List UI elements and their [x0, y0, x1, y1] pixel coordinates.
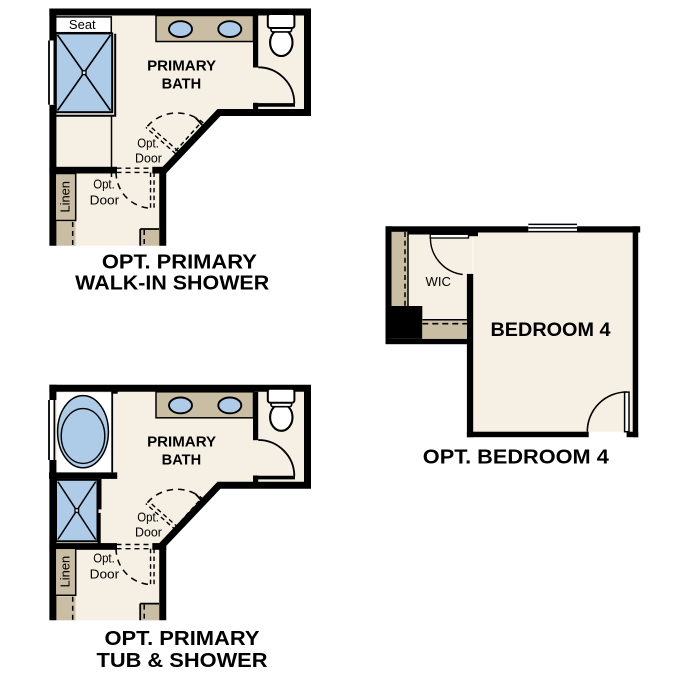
svg-text:BATH: BATH — [162, 75, 202, 92]
svg-text:WIC: WIC — [426, 274, 451, 289]
svg-text:PRIMARY: PRIMARY — [147, 434, 216, 451]
svg-text:Opt.: Opt. — [93, 551, 115, 566]
svg-text:BATH: BATH — [162, 452, 202, 469]
svg-text:OPT. PRIMARY: OPT. PRIMARY — [105, 627, 260, 650]
svg-text:Linen: Linen — [58, 556, 73, 588]
svg-text:Linen: Linen — [58, 181, 73, 213]
svg-text:WALK-IN SHOWER: WALK-IN SHOWER — [75, 271, 269, 294]
svg-text:Seat: Seat — [69, 17, 96, 32]
svg-text:BEDROOM 4: BEDROOM 4 — [491, 320, 611, 341]
svg-text:OPT. BEDROOM 4: OPT. BEDROOM 4 — [423, 445, 610, 468]
svg-text:PRIMARY: PRIMARY — [147, 57, 216, 74]
svg-text:Door: Door — [90, 192, 120, 207]
svg-text:OPT. PRIMARY: OPT. PRIMARY — [102, 251, 257, 274]
svg-text:Opt.: Opt. — [137, 510, 159, 525]
svg-text:Opt.: Opt. — [137, 135, 159, 150]
svg-text:Door: Door — [135, 150, 163, 165]
svg-text:Door: Door — [90, 567, 120, 582]
svg-text:Door: Door — [135, 525, 163, 540]
svg-text:TUB & SHOWER: TUB & SHOWER — [97, 649, 268, 672]
svg-text:Opt.: Opt. — [93, 176, 115, 191]
